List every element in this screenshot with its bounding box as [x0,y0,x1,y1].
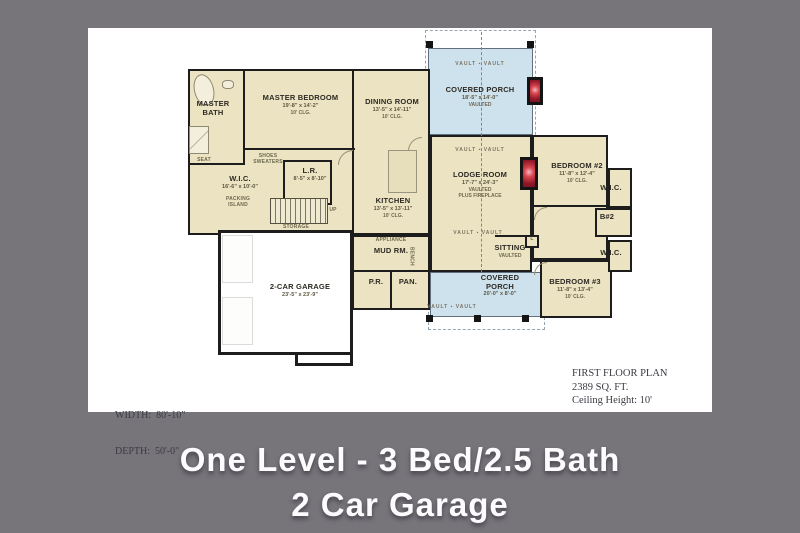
room-label-lodge-room: LODGE ROOM 17'-7" x 24'-3" VAULTED PLUS … [430,171,530,199]
porch-post [426,41,433,48]
porch-post [474,315,481,322]
room-label-covered-porch-top: COVERED PORCH 18'-5" x 14'-0" VAULTED [435,86,525,108]
room-label-master-bedroom: MASTER BEDROOM 19'-8" x 14'-2" 10' CLG. [248,94,353,116]
wall-master-bath-right [243,69,245,165]
garage-bay-outline [222,297,253,345]
plan-title: FIRST FLOOR PLAN [572,367,668,381]
room-label-mud-room: MUD RM. [373,247,409,256]
screenshot-root: { "colors": { "background": "#77747a", "… [0,0,800,533]
room-label-master-bath: MASTER BATH [190,100,236,117]
room-label-covered-porch-bottom: COVERED PORCH 20'-0" x 8'-0" [470,274,530,298]
door-arc [534,262,547,275]
label-appliance: APPLIANCE [369,238,413,244]
room-label-wic-master: W.I.C. 16'-6" x 10'-0" [202,175,278,191]
room-label-powder-room: P.R. [361,278,391,287]
label-linen: L [526,237,538,243]
label-packing-island: PACKING ISLAND [218,197,258,208]
room-label-bath-2: B#2 [584,213,630,222]
stairs [270,198,328,224]
room-label-laundry: L.R. 8'-5" x 8'-10" [282,167,338,183]
room-label-pantry: PAN. [393,278,423,287]
label-vault: VAULT ▪ VAULT [440,147,520,153]
room-label-wic-2: W.I.C. [588,184,634,193]
caption: One Level - 3 Bed/2.5 Bath 2 Car Garage [0,437,800,528]
room-label-bedroom-3: BEDROOM #3 11'-8" x 13'-4" 10' CLG. [525,278,625,300]
room-label-sitting: SITTING VAULTED [472,244,548,259]
wall-master-bedroom-bottom [243,148,355,150]
plan-title-block: FIRST FLOOR PLAN 2389 SQ. FT. Ceiling He… [572,367,668,408]
room-label-kitchen: KITCHEN 13'-5" x 13'-11" 10' CLG. [353,197,433,219]
label-seat: SEAT [191,158,217,164]
caption-line-1: One Level - 3 Bed/2.5 Bath [0,437,800,482]
bedroom2-wing-area [532,135,608,260]
porch-post [522,315,529,322]
room-label-garage: 2-CAR GARAGE 23'-5" x 23'-9" [250,283,350,299]
porch-post [426,315,433,322]
width-note: WIDTH: 80'-10" [115,410,185,422]
fireplace-icon [527,77,543,105]
garage-step-area [295,352,353,366]
room-label-bedroom-2: BEDROOM #2 11'-8" x 12'-4" 10' CLG. [527,162,627,184]
garage-bay-outline [222,235,253,283]
room-label-wic-3: W.I.C. [588,249,634,258]
label-vault: VAULT ▪ VAULT [438,230,518,236]
label-vault: VAULT ▪ VAULT [440,61,520,67]
plan-area: 2389 SQ. FT. [572,381,668,395]
kitchen-island [388,150,417,193]
room-label-dining-room: DINING ROOM 13'-5" x 14'-11" 10' CLG. [349,98,435,120]
label-vault: VAULT ▪ VAULT [412,304,492,310]
label-shoes-sweaters: SHOES SWEATERS [251,154,285,165]
caption-line-2: 2 Car Garage [0,482,800,528]
toilet [222,80,234,89]
label-storage: STORAGE [281,225,311,231]
label-bench: BENCH [408,243,414,269]
shower [189,126,209,154]
plan-ceiling: Ceiling Height: 10' [572,394,668,408]
plan-sheet: MASTER BATH MASTER BEDROOM 19'-8" x 14'-… [88,28,712,412]
porch-post [527,41,534,48]
label-up: UP [326,208,340,214]
